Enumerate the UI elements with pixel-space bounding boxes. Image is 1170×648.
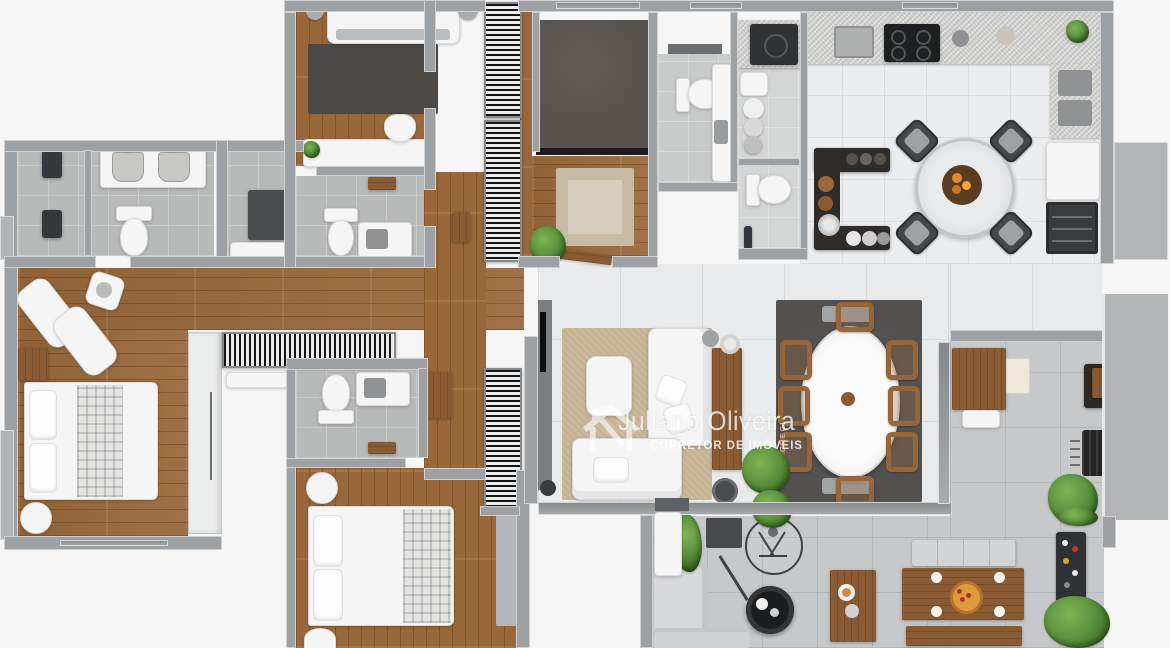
- terrace-outer-mass: [1102, 294, 1168, 520]
- shelf-line: [1052, 216, 1092, 218]
- bottle-cap: [1072, 546, 1078, 552]
- dinner-plate: [931, 572, 942, 583]
- cutting-board: [818, 196, 833, 211]
- toilet-3-tank: [318, 410, 354, 424]
- door-mat: [655, 498, 689, 511]
- floor-plan-render: Juliano Oliveira CORRETOR DE IMÓVEIS CRE…: [0, 0, 1170, 648]
- terrace-left-wall: [640, 515, 653, 648]
- outdoor-sofa-run: [654, 628, 750, 648]
- dining-chair: [886, 340, 918, 380]
- fire-pit-table: [746, 586, 794, 634]
- shelf-line: [1052, 240, 1092, 242]
- shower-column-1: [42, 150, 62, 178]
- chair-knob: [768, 527, 778, 537]
- pouf-3b: [304, 628, 336, 648]
- washer-door: [764, 34, 788, 58]
- towel-shelf-2: [368, 177, 396, 190]
- lazy-susan: [942, 165, 982, 205]
- hall-end-wall: [424, 468, 486, 480]
- bottle-cap: [1063, 558, 1069, 564]
- bedroom2-bath2-wall: [316, 166, 432, 176]
- plaid-blanket: [403, 509, 451, 623]
- tv: [540, 312, 546, 372]
- double-sink: [1058, 70, 1092, 96]
- hall-ladder-shelf: [452, 212, 470, 242]
- window-laundry: [690, 2, 742, 9]
- burner: [891, 30, 906, 45]
- toilet-master-bowl: [120, 218, 148, 256]
- laundry-tub: [740, 72, 768, 96]
- service-shower-bar: [744, 226, 752, 250]
- bath3-left-wall: [286, 358, 296, 648]
- pepperoni: [957, 589, 962, 594]
- bath-closet-divider: [216, 140, 228, 268]
- wardrobe-handle: [210, 392, 212, 480]
- burner: [891, 46, 906, 61]
- double-sink-2: [1058, 100, 1092, 126]
- dinner-plate: [994, 572, 1005, 583]
- kitchen-cart: [1046, 142, 1100, 200]
- balcony-ledge-2: [0, 430, 14, 540]
- ac-ledge: [1114, 142, 1168, 260]
- pizza: [950, 581, 983, 614]
- dining-chair: [888, 386, 920, 426]
- living-glass-doors: [538, 502, 952, 515]
- bed-3: [308, 506, 454, 626]
- bar-cart: [1056, 532, 1086, 602]
- laundry-kitchen-wall: [800, 12, 808, 252]
- shelf-line: [1052, 228, 1092, 230]
- kettle: [952, 30, 969, 47]
- island-towel: [1006, 358, 1030, 394]
- cup: [770, 608, 779, 617]
- bar-plate: [860, 153, 872, 165]
- canister: [846, 231, 861, 246]
- bath-block-bottom-a: [4, 256, 96, 268]
- floor-lamp: [540, 480, 556, 496]
- den-floor: [540, 20, 648, 148]
- service-toilet-bowl: [758, 175, 791, 204]
- cooktop: [884, 24, 940, 62]
- gray-plate: [845, 604, 859, 618]
- kitchen-right-wall: [1100, 12, 1114, 264]
- terrace-door-leaf: [654, 512, 682, 576]
- chair-frame: [759, 555, 787, 557]
- wardrobe3-bottom-wall: [480, 506, 520, 516]
- dining-chair: [886, 432, 918, 472]
- pillow: [29, 390, 57, 440]
- bottle-cap: [1062, 540, 1068, 546]
- shower-column-2: [42, 210, 62, 238]
- fruit: [952, 173, 962, 183]
- dresser-3: [426, 372, 452, 418]
- pillow: [313, 515, 343, 567]
- wc-laundry-divider: [730, 12, 738, 184]
- table-lamp-1: [702, 330, 719, 347]
- fruit-bowl: [996, 26, 1015, 45]
- armchair: [586, 356, 632, 416]
- balcony-ledge-1: [0, 216, 14, 260]
- wardrobe-col-b: [484, 120, 522, 262]
- centerpiece: [841, 392, 855, 406]
- sofa-chaise: [572, 438, 682, 500]
- wc-sink: [714, 120, 728, 144]
- canister: [877, 232, 890, 245]
- vanity-sink-2: [158, 152, 190, 182]
- laundry-basket-2: [744, 118, 763, 137]
- entry-bottom-wall-a: [518, 256, 560, 268]
- canister: [862, 231, 877, 246]
- bath-divider-wall: [84, 150, 92, 256]
- outdoor-bench-modular: [912, 540, 1016, 566]
- laundry-basket-3: [744, 136, 762, 154]
- table-lamp-2: [720, 334, 740, 354]
- bottle-cap: [1072, 570, 1078, 576]
- living-upper-right-floor: [950, 264, 1102, 332]
- bath-block-bottom-b: [130, 256, 436, 268]
- pepperoni: [966, 593, 971, 598]
- entry-bottom-wall-b: [612, 256, 658, 268]
- throw-pillow: [593, 457, 629, 483]
- laundry-bottom-wall: [738, 248, 808, 260]
- mandala-side-table: [712, 478, 738, 504]
- bottle-cap: [1064, 582, 1070, 588]
- dinner-plate: [994, 606, 1005, 617]
- steel-bowl: [818, 214, 840, 236]
- fruit: [962, 181, 971, 190]
- terrace-plant-4: [1058, 508, 1098, 526]
- living-left-wall: [524, 336, 538, 504]
- den-right-wall: [648, 12, 658, 264]
- outer-wall-bedroom2-top: [284, 0, 486, 12]
- kitchen-sink: [834, 26, 874, 58]
- bedroom2-right-wall-c: [424, 226, 436, 268]
- den-door-rails: [536, 146, 650, 155]
- bed-master: [24, 382, 158, 500]
- terrace-mat: [706, 518, 742, 548]
- bath3-top-wall: [286, 358, 428, 370]
- outdoor-dining-bench: [906, 626, 1022, 646]
- rug-bedroom-2: [308, 44, 438, 114]
- window-den: [556, 2, 640, 9]
- wc-bottom-wall: [658, 182, 738, 192]
- entry-rug-center: [568, 180, 622, 234]
- vanity-sink-1: [112, 152, 144, 182]
- towel-rack-3: [368, 442, 396, 454]
- nightstand-master: [18, 348, 48, 380]
- entry-rug: [556, 168, 634, 246]
- living-plant-1: [742, 446, 790, 494]
- dining-chair: [780, 340, 812, 380]
- dining-chair: [778, 386, 810, 426]
- grill-shelf: [1070, 440, 1080, 466]
- wardrobe-white: [188, 332, 222, 534]
- vanity-3-sink: [364, 378, 386, 398]
- desk-plant: [303, 141, 320, 158]
- laundry-basket-1: [743, 98, 764, 119]
- pepperoni: [960, 597, 965, 602]
- desk-bedroom-2: [303, 139, 432, 167]
- bath3-bed3-wall: [286, 458, 406, 468]
- terrace-outer-wall-stub: [1102, 516, 1116, 548]
- pillow: [29, 443, 57, 493]
- pouf-3a: [306, 472, 338, 504]
- napkin: [756, 598, 768, 610]
- laundry-internal-wall: [738, 158, 800, 166]
- window-kitchen: [902, 2, 958, 9]
- pastry: [842, 588, 851, 597]
- outdoor-stool: [962, 410, 1000, 428]
- dining-chair-end: [836, 302, 874, 332]
- window-master: [60, 540, 168, 546]
- burner: [916, 30, 931, 45]
- dinner-plate: [931, 606, 942, 617]
- vanity-2-sink: [366, 229, 388, 249]
- bath3-right-wall: [418, 368, 428, 458]
- bedroom2-left-wall: [284, 12, 296, 268]
- terrace-top-wall: [950, 330, 1110, 342]
- pillow: [313, 569, 343, 621]
- toilet-2-bowl: [328, 220, 354, 256]
- kitchen-plant: [1066, 20, 1089, 43]
- bedroom2-right-wall-b: [424, 108, 436, 190]
- cutting-board: [818, 176, 834, 192]
- toilet-3-bowl: [322, 374, 350, 412]
- bar-plate: [846, 153, 858, 165]
- closet-shelf: [226, 372, 290, 388]
- ottoman-master: [20, 502, 52, 534]
- outer-wall-bath-top: [4, 140, 304, 152]
- fruit: [952, 185, 961, 194]
- sofa-long: [648, 328, 712, 446]
- throw-pillow: [662, 402, 696, 436]
- outdoor-island: [952, 348, 1006, 410]
- desk-chair: [384, 114, 416, 142]
- bar-plate: [874, 153, 886, 165]
- runner-rug-3: [496, 506, 516, 626]
- side-table-tray: [96, 282, 112, 298]
- wardrobe-col-a: [484, 2, 522, 118]
- washer: [750, 24, 798, 65]
- burner: [916, 46, 931, 61]
- terrace-plant-2: [1044, 596, 1110, 648]
- plaid-blanket: [77, 385, 123, 497]
- console-table: [712, 348, 742, 470]
- bedroom2-right-wall-a: [424, 0, 436, 72]
- living-terrace-glass: [938, 342, 950, 504]
- den-left-wall: [532, 12, 540, 152]
- wine-cabinet: [1046, 202, 1098, 254]
- wc-door: [668, 44, 722, 54]
